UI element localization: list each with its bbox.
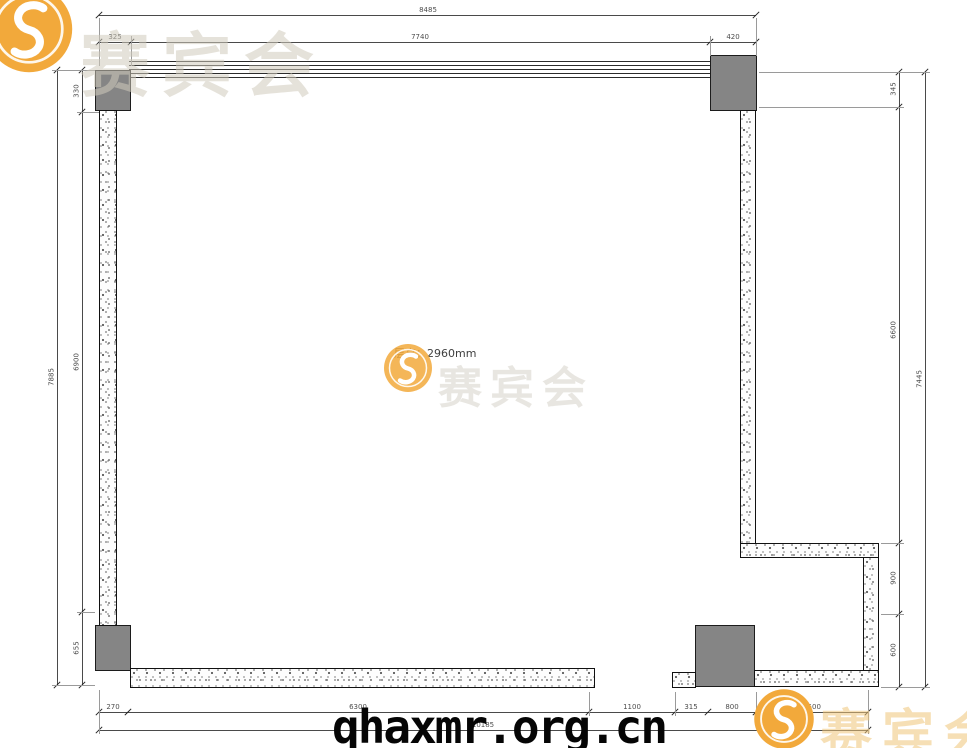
- dim-left-total: 7885: [49, 368, 56, 386]
- dim-left-seg-3: 655: [74, 641, 81, 654]
- dim-line-left-total: [57, 70, 58, 685]
- extension-line: [675, 692, 676, 716]
- dim-top-total: 8485: [419, 7, 437, 14]
- extension-line: [759, 107, 904, 108]
- dim-bottom-seg-5: 800: [725, 704, 738, 711]
- brand-s-icon: [383, 343, 433, 393]
- extension-line: [881, 687, 930, 688]
- dim-right-seg-1: 345: [891, 82, 898, 95]
- extension-line: [710, 36, 711, 56]
- extension-line: [881, 614, 904, 615]
- column-bottom-left: [95, 625, 131, 671]
- dim-line-left-segments: [82, 70, 83, 685]
- extension-line: [99, 690, 100, 734]
- column-top-right: [710, 55, 757, 111]
- dim-top-seg-2: 7740: [411, 34, 429, 41]
- watermark-logo-center: [383, 343, 433, 393]
- watermark-brand-top-left: 赛宾会: [80, 10, 326, 111]
- watermark-brand-bottom-right: 赛宾会: [820, 692, 967, 748]
- dim-right-seg-3: 900: [891, 571, 898, 584]
- wall-step-top: [740, 543, 879, 558]
- dim-right-seg-2: 6600: [891, 321, 898, 339]
- wall-right-lower: [863, 557, 879, 687]
- dim-line-right-total: [925, 72, 926, 687]
- wall-bottom-small: [672, 672, 696, 688]
- wall-left: [99, 110, 117, 626]
- wall-bottom-right: [754, 670, 879, 687]
- brand-s-icon: [0, 0, 74, 74]
- dim-left-seg-2: 6900: [74, 353, 81, 371]
- floor-plan-canvas: 8485 325 7740 420 7885 330 6900 655 345 …: [0, 0, 967, 748]
- extension-line: [77, 112, 99, 113]
- watermark-url: qhaxmr.org.cn: [332, 700, 666, 748]
- wall-bottom-main: [130, 668, 595, 688]
- dim-right-total: 7445: [917, 370, 924, 388]
- dim-bottom-seg-4: 315: [684, 704, 697, 711]
- dim-bottom-seg-1: 270: [106, 704, 119, 711]
- wall-right-upper: [740, 110, 756, 544]
- dim-top-seg-3: 420: [726, 34, 739, 41]
- extension-line: [77, 612, 95, 613]
- watermark-logo-bottom-right: [753, 688, 815, 748]
- dim-right-seg-4: 600: [891, 643, 898, 656]
- extension-line: [759, 72, 930, 73]
- extension-line: [756, 18, 757, 56]
- extension-line: [52, 685, 95, 686]
- watermark-logo-top-left: [0, 0, 74, 74]
- dim-line-right-segments: [899, 72, 900, 687]
- column-bottom-middle: [695, 625, 755, 687]
- watermark-brand-center: 赛宾会: [438, 352, 594, 416]
- extension-line: [881, 543, 904, 544]
- brand-s-icon: [753, 688, 815, 748]
